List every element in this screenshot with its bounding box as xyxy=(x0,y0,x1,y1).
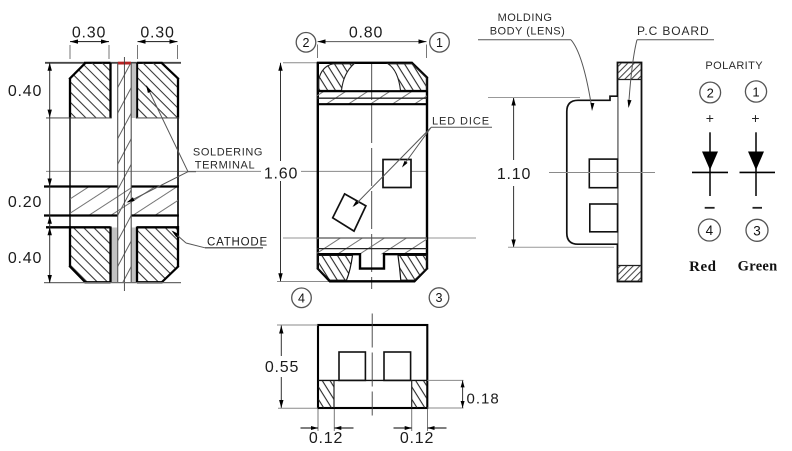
svg-text:Green: Green xyxy=(738,258,778,274)
svg-text:Red: Red xyxy=(689,259,716,275)
svg-text:POLARITY: POLARITY xyxy=(705,60,763,72)
svg-text:2: 2 xyxy=(707,85,714,100)
svg-text:SOLDERING: SOLDERING xyxy=(193,147,263,159)
svg-text:0.30: 0.30 xyxy=(140,25,174,42)
svg-text:MOLDING: MOLDING xyxy=(498,12,553,24)
svg-text:+: + xyxy=(706,110,714,126)
svg-text:+: + xyxy=(751,110,759,126)
svg-text:P.C BOARD: P.C BOARD xyxy=(637,24,710,38)
svg-text:1.10: 1.10 xyxy=(497,166,531,183)
svg-text:0.40: 0.40 xyxy=(8,83,42,100)
svg-text:2: 2 xyxy=(303,36,310,50)
svg-text:BODY (LENS): BODY (LENS) xyxy=(490,26,566,38)
svg-text:0.18: 0.18 xyxy=(467,391,500,408)
svg-text:LED DICE: LED DICE xyxy=(432,116,490,128)
svg-text:4: 4 xyxy=(298,291,305,305)
svg-text:0.55: 0.55 xyxy=(265,359,299,376)
svg-text:0.40: 0.40 xyxy=(8,250,42,267)
svg-text:3: 3 xyxy=(753,223,761,238)
svg-text:CATHODE: CATHODE xyxy=(207,236,268,248)
svg-text:1.60: 1.60 xyxy=(264,166,298,183)
svg-text:1: 1 xyxy=(436,36,443,50)
svg-text:3: 3 xyxy=(436,291,443,305)
svg-text:1: 1 xyxy=(752,84,759,99)
svg-text:0.30: 0.30 xyxy=(72,25,106,42)
svg-text:4: 4 xyxy=(706,223,714,238)
svg-text:0.20: 0.20 xyxy=(8,194,42,211)
svg-text:0.12: 0.12 xyxy=(400,430,434,447)
svg-text:TERMINAL: TERMINAL xyxy=(195,160,255,172)
svg-text:0.12: 0.12 xyxy=(309,430,343,447)
svg-text:0.80: 0.80 xyxy=(349,25,383,42)
